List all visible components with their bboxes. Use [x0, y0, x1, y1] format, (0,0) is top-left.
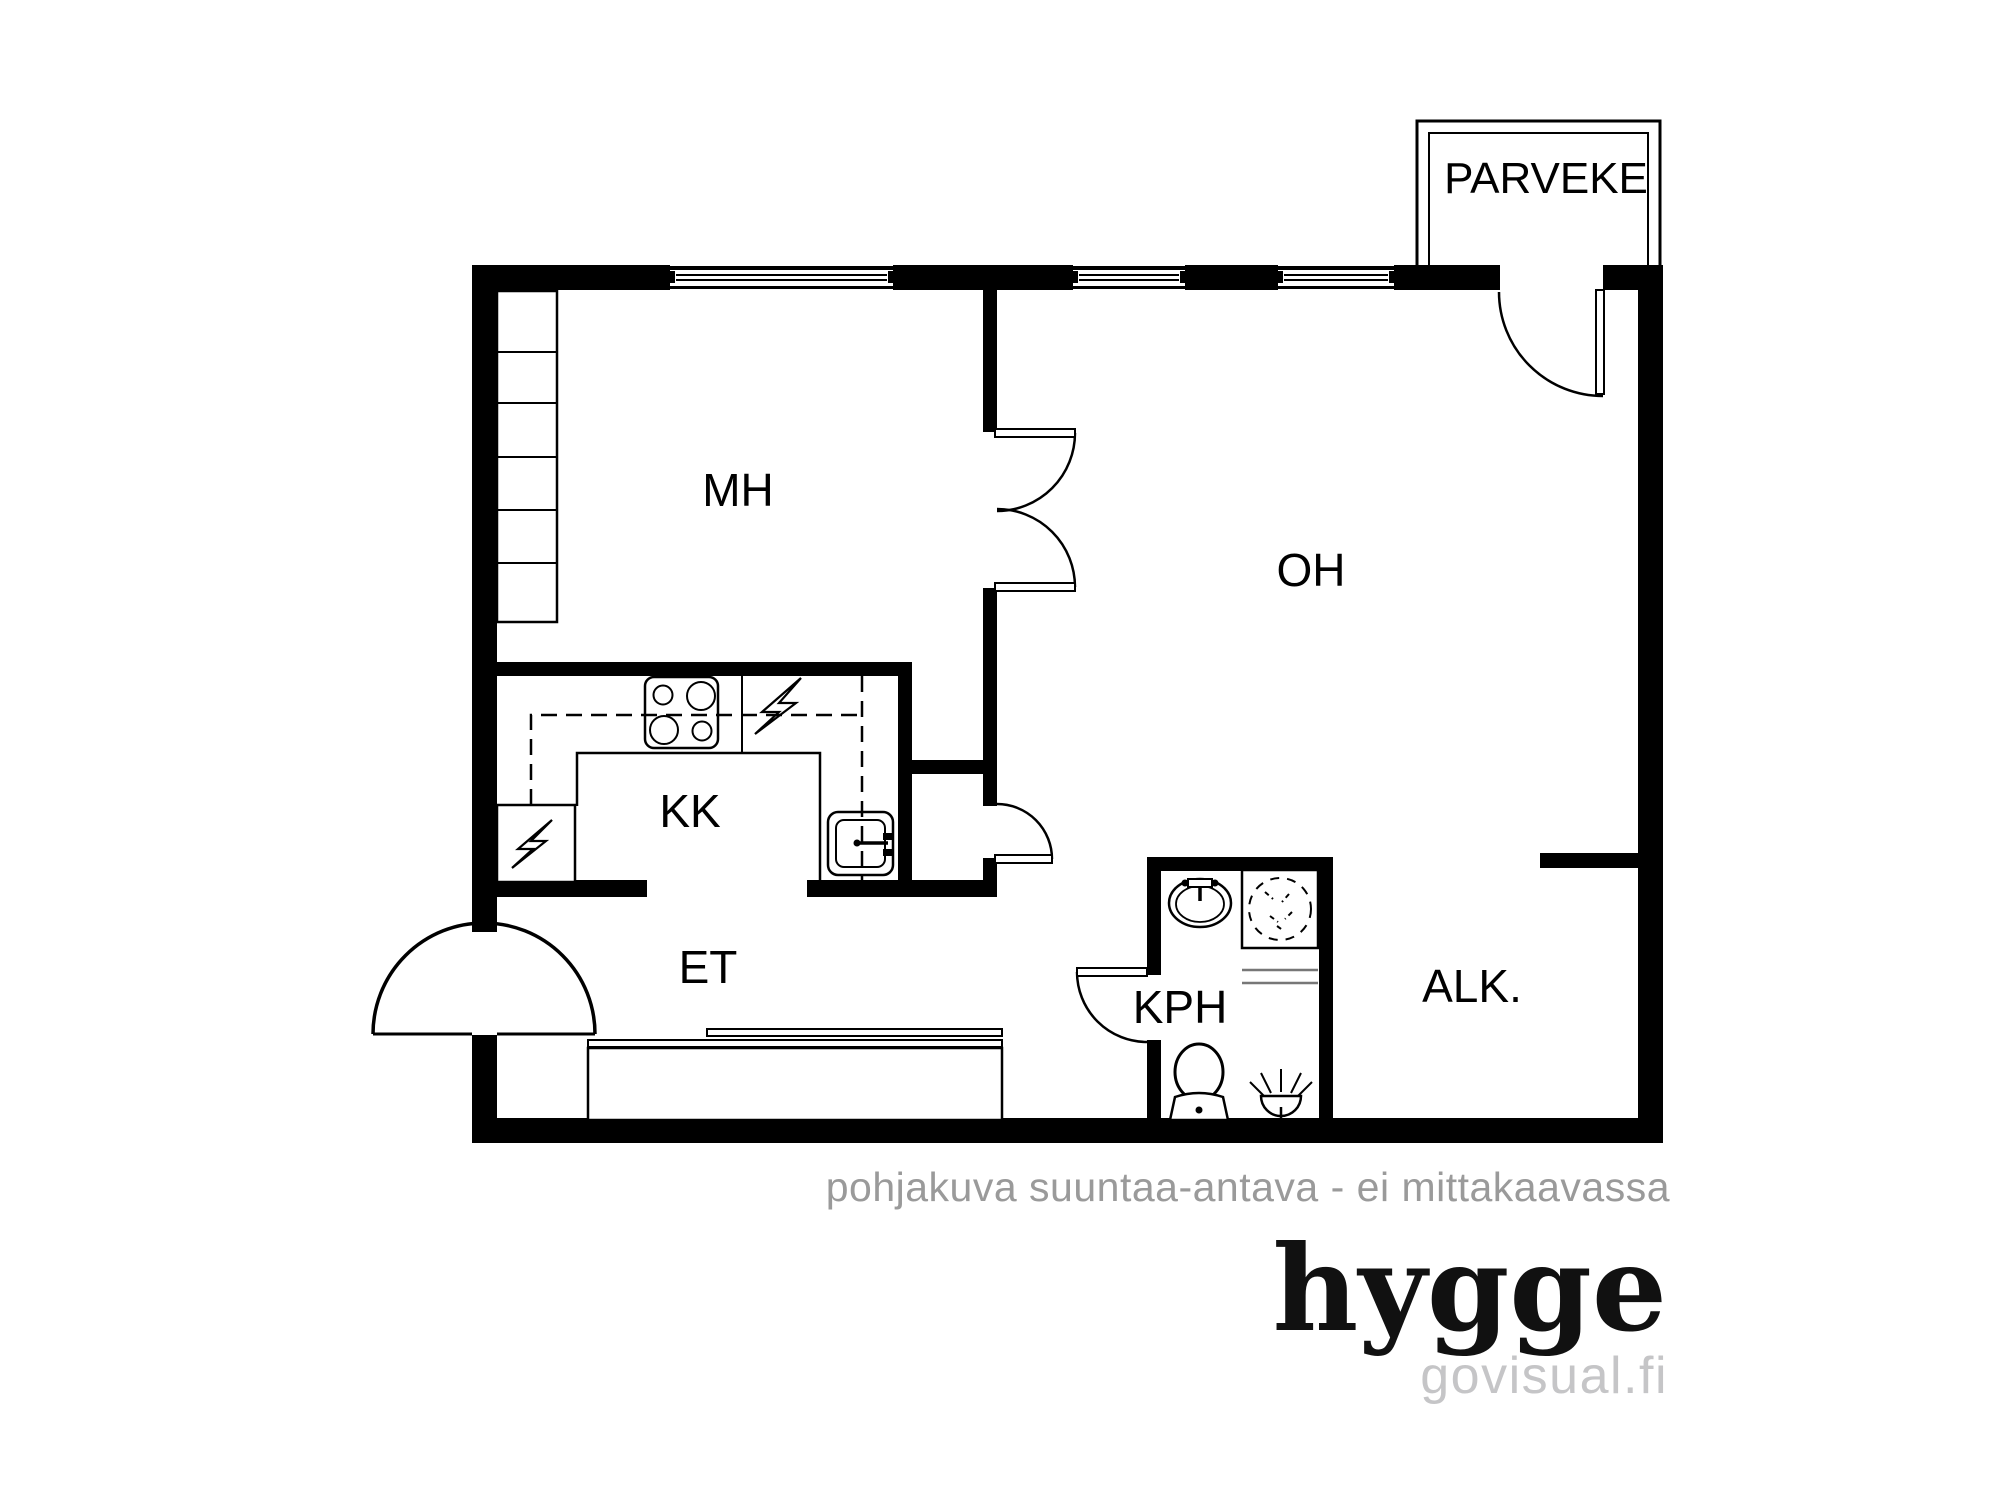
bathroom-sink-icon — [1169, 879, 1231, 927]
toilet-icon — [1170, 1044, 1228, 1120]
wardrobe — [497, 291, 557, 622]
hall-to-livingroom-door — [995, 804, 1052, 863]
room-label-alk: ALK. — [1422, 960, 1522, 1012]
stove-icon — [645, 677, 718, 748]
double-swing-door — [995, 429, 1075, 591]
entrance-door — [373, 923, 595, 1034]
floor-drain-icon — [1250, 1069, 1312, 1120]
disclaimer-caption: pohjakuva suuntaa-antava - ei mittakaava… — [826, 1164, 1670, 1210]
room-label-mh: MH — [702, 464, 774, 516]
balcony-door — [1499, 290, 1604, 396]
room-label-et: ET — [679, 941, 738, 993]
room-label-kph: KPH — [1133, 981, 1228, 1033]
balcony-label: PARVEKE — [1444, 154, 1648, 203]
sideboard — [588, 1029, 1002, 1120]
bathroom-shelf — [1242, 970, 1318, 983]
electric-appliance-icon — [755, 678, 801, 734]
brand-logo: hygge — [1273, 1219, 1667, 1358]
floorplan-drawing: MH OH KK ET KPH ALK. PARVEKE pohjakuva s… — [0, 0, 2000, 1500]
floorplan-canvas: MH OH KK ET KPH ALK. PARVEKE pohjakuva s… — [0, 0, 2000, 1500]
brand-website: govisual.fi — [1420, 1347, 1668, 1405]
washing-machine-icon — [1242, 870, 1318, 948]
room-label-kk: KK — [659, 785, 721, 837]
fridge-icon — [497, 805, 575, 882]
kitchen-sink-icon — [828, 812, 893, 875]
window — [670, 265, 893, 290]
room-label-oh: OH — [1277, 544, 1346, 596]
window — [1278, 265, 1394, 290]
window — [1073, 265, 1185, 290]
